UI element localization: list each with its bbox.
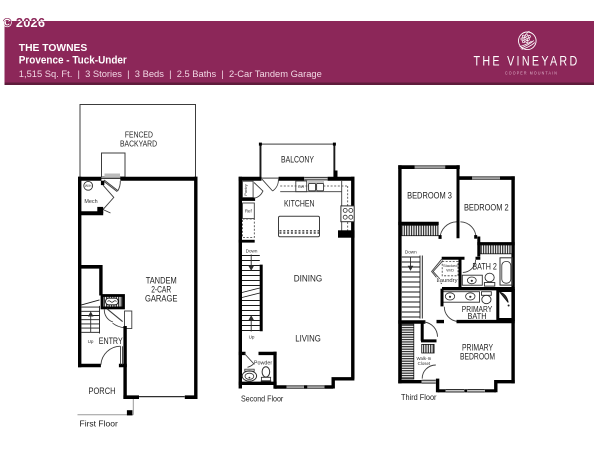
svg-text:DINING: DINING xyxy=(294,273,323,283)
svg-text:DW: DW xyxy=(298,185,305,189)
svg-text:BEDROOM 3: BEDROOM 3 xyxy=(407,190,452,200)
svg-text:COOPER MOUNTAIN: COOPER MOUNTAIN xyxy=(505,71,558,77)
svg-text:Mech: Mech xyxy=(84,199,97,205)
svg-text:Powder: Powder xyxy=(254,360,272,366)
svg-text:First Floor: First Floor xyxy=(80,419,119,429)
svg-text:BALCONY: BALCONY xyxy=(281,154,314,164)
svg-text:Second Floor: Second Floor xyxy=(241,394,283,404)
svg-text:Up: Up xyxy=(88,339,94,344)
svg-text:ENTRY: ENTRY xyxy=(99,336,123,346)
svg-text:Down: Down xyxy=(246,249,258,254)
svg-text:THE TOWNES: THE TOWNES xyxy=(19,43,88,54)
svg-text:PORCH: PORCH xyxy=(89,386,116,396)
svg-text:Provence - Tuck-Under: Provence - Tuck-Under xyxy=(19,54,127,66)
svg-text:BATH: BATH xyxy=(468,311,487,321)
svg-text:LIVING: LIVING xyxy=(295,334,321,344)
svg-text:GARAGE: GARAGE xyxy=(145,293,178,303)
svg-text:Laundry: Laundry xyxy=(437,278,458,284)
svg-text:BEDROOM 2: BEDROOM 2 xyxy=(464,203,509,213)
svg-text:BATH 2: BATH 2 xyxy=(472,261,497,271)
svg-text:THE VINEYARD: THE VINEYARD xyxy=(474,53,580,69)
svg-text:BEDROOM: BEDROOM xyxy=(460,352,495,362)
svg-text:BACKYARD: BACKYARD xyxy=(120,139,157,149)
svg-text:W/H: W/H xyxy=(85,184,92,188)
svg-text:W/D: W/D xyxy=(446,268,454,273)
svg-text:1,515 Sq. Ft. | 3 Stories |: 1,515 Sq. Ft. | 3 Stories | 3 Beds | 2.5… xyxy=(19,69,322,79)
svg-text:KITCHEN: KITCHEN xyxy=(284,199,315,209)
svg-text:Third Floor: Third Floor xyxy=(401,392,437,402)
svg-text:Closet: Closet xyxy=(418,361,431,366)
svg-text:Ref: Ref xyxy=(245,209,253,214)
svg-text:Up: Up xyxy=(249,335,255,340)
svg-text:Pantry: Pantry xyxy=(243,184,248,196)
svg-text:Down: Down xyxy=(405,250,417,255)
